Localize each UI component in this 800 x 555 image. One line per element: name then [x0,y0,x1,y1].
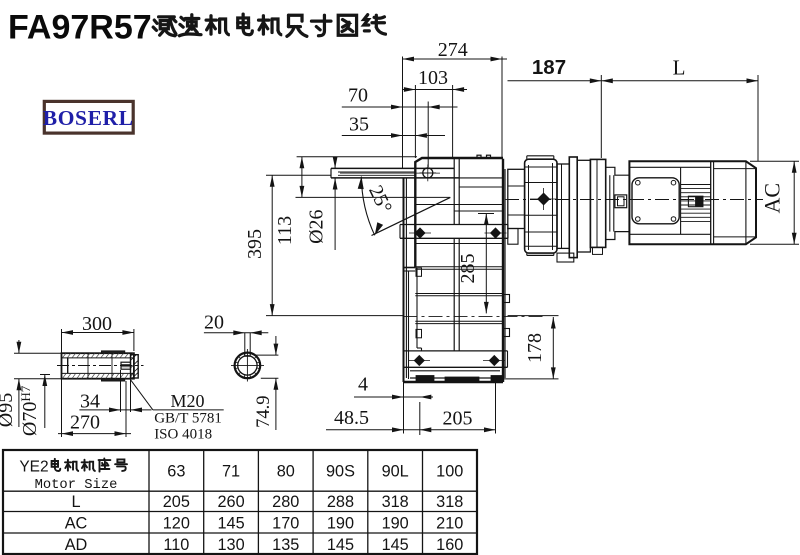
svg-text:34: 34 [80,391,100,413]
svg-text:80: 80 [277,463,295,481]
svg-text:190: 190 [382,515,409,533]
svg-text:210: 210 [436,515,463,533]
svg-text:BOSERL: BOSERL [43,106,134,130]
svg-text:395: 395 [244,229,266,259]
svg-text:187: 187 [532,56,566,79]
svg-text:Ø26: Ø26 [306,209,328,243]
svg-text:GB/T 5781: GB/T 5781 [154,411,222,427]
svg-text:35: 35 [349,114,369,136]
svg-text:205: 205 [163,493,190,511]
svg-text:90L: 90L [382,463,409,481]
svg-text:63: 63 [167,463,185,481]
svg-text:90S: 90S [326,463,355,481]
svg-text:Motor Size: Motor Size [35,477,118,493]
svg-text:AD: AD [65,536,88,554]
svg-text:145: 145 [327,536,354,554]
svg-text:145: 145 [382,536,409,554]
svg-text:113: 113 [274,216,296,245]
svg-text:135: 135 [272,536,299,554]
svg-text:71: 71 [222,463,240,481]
svg-text:FA97R57: FA97R57 [8,9,152,47]
svg-text:178: 178 [524,333,546,363]
svg-text:318: 318 [436,493,463,511]
svg-text:20: 20 [204,312,224,334]
svg-text:288: 288 [327,493,354,511]
svg-text:260: 260 [217,493,244,511]
svg-text:300: 300 [82,313,112,335]
svg-text:L: L [673,56,686,80]
svg-text:M20: M20 [170,391,204,411]
svg-text:L: L [71,493,80,511]
svg-text:ISO 4018: ISO 4018 [154,427,212,443]
svg-text:318: 318 [382,493,409,511]
svg-text:110: 110 [163,536,189,554]
svg-text:AC: AC [760,183,785,214]
svg-text:48.5: 48.5 [334,407,369,429]
svg-text:160: 160 [436,536,463,554]
svg-text:170: 170 [272,515,299,533]
svg-text:145: 145 [217,515,244,533]
svg-text:74.9: 74.9 [254,396,274,428]
svg-text:103: 103 [418,67,448,89]
svg-text:AC: AC [65,515,88,533]
svg-text:Ø95: Ø95 [0,393,17,427]
svg-text:280: 280 [272,493,299,511]
svg-text:120: 120 [163,515,190,533]
svg-text:70: 70 [348,85,368,107]
svg-text:205: 205 [443,408,473,430]
svg-text:190: 190 [327,515,354,533]
svg-text:4: 4 [358,374,368,396]
svg-text:100: 100 [436,463,463,481]
svg-text:130: 130 [217,536,244,554]
svg-text:285: 285 [457,254,479,284]
svg-text:YE2: YE2 [19,459,48,476]
svg-text:270: 270 [70,412,100,434]
svg-text:274: 274 [438,39,468,61]
